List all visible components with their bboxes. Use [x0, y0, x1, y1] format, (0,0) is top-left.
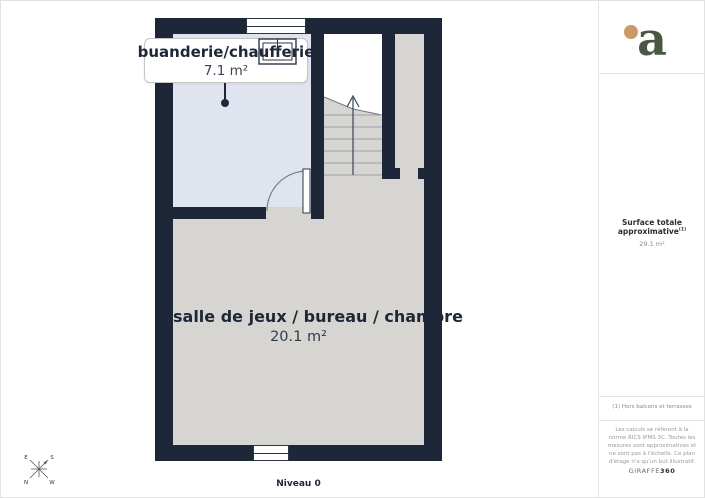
brand-logo: a	[599, 9, 705, 69]
disclaimer-text: Les calculs se réfèrent à la norme RICS …	[607, 426, 697, 466]
footnote: (1) Hors balcons et terrasses	[599, 404, 705, 410]
window-top	[246, 18, 306, 34]
label-leader-dot	[221, 99, 229, 107]
wall-stub-right	[418, 168, 424, 179]
info-sidebar: a Surface totale approximative(1) 29.1 m…	[598, 1, 705, 498]
window-bottom	[253, 445, 289, 461]
compass-w: W	[49, 480, 55, 486]
floorplan-page: buanderie/chaufferie 7.1 m² salle de jeu…	[0, 0, 705, 498]
surface-total-title: Surface totale approximative(1)	[599, 218, 705, 236]
room-area: 7.1 m²	[204, 63, 248, 79]
window-mullion	[254, 453, 288, 454]
divider	[599, 396, 705, 397]
surface-total-value: 29.1 m²	[599, 240, 705, 248]
logo-letter-a: a	[637, 16, 667, 62]
staircase-icon	[324, 34, 382, 179]
door-swing-icon	[261, 166, 313, 216]
surface-total-block: Surface totale approximative(1) 29.1 m²	[599, 218, 705, 248]
compass-icon: E S N W	[17, 447, 61, 491]
room-label-main: salle de jeux / bureau / chambre 20.1 m²	[173, 307, 424, 345]
wall-buanderie-bottom	[173, 207, 266, 219]
compass-e: E	[24, 455, 28, 461]
wall-stair-right	[382, 34, 395, 179]
logo-dot-icon	[624, 25, 638, 39]
brand-name: GIRAFFE	[629, 467, 660, 475]
boiler-icon	[257, 37, 299, 67]
compass-n: N	[24, 480, 28, 486]
surface-title-sup: (1)	[679, 228, 686, 233]
compass-s: S	[50, 455, 54, 461]
divider	[599, 73, 705, 74]
brand-suffix: 360	[660, 467, 675, 475]
wall-stair-right-foot	[382, 168, 400, 179]
window-mullion	[247, 26, 305, 27]
level-label: Niveau 0	[155, 479, 442, 489]
divider	[599, 420, 705, 421]
surface-title-text: Surface totale approximative	[618, 218, 682, 236]
room-name: salle de jeux / bureau / chambre	[173, 307, 424, 326]
brand-wordmark: GIRAFFE360	[599, 467, 705, 475]
room-area: 20.1 m²	[173, 329, 424, 345]
